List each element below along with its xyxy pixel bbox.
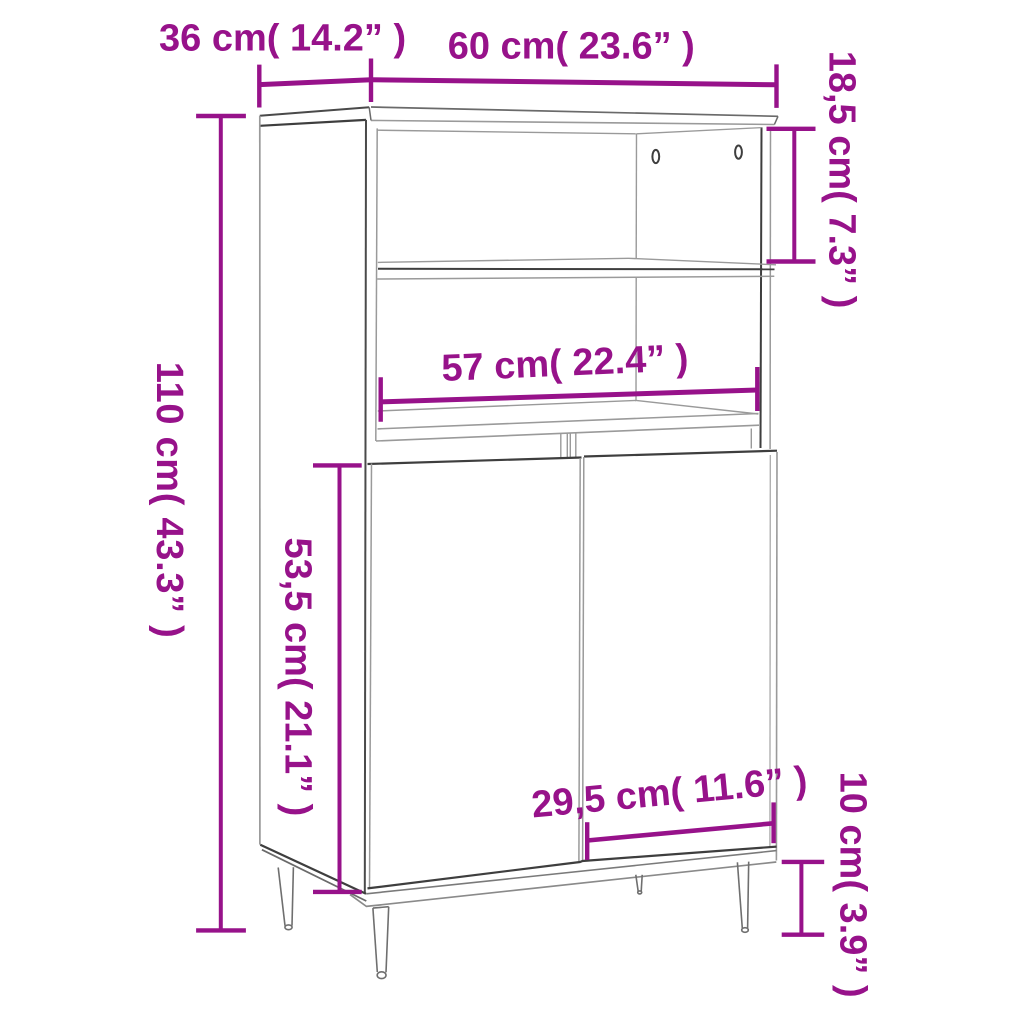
- svg-text:10 cm( 3.9” ): 10 cm( 3.9” ): [832, 772, 874, 998]
- svg-text:53,5 cm( 21.1” ): 53,5 cm( 21.1” ): [277, 538, 319, 817]
- svg-text:18,5 cm( 7.3” ): 18,5 cm( 7.3” ): [821, 51, 863, 309]
- svg-text:36 cm( 14.2” ): 36 cm( 14.2” ): [159, 18, 406, 60]
- svg-text:60 cm( 23.6” ): 60 cm( 23.6” ): [448, 25, 695, 67]
- svg-text:110 cm( 43.3” ): 110 cm( 43.3” ): [148, 362, 190, 639]
